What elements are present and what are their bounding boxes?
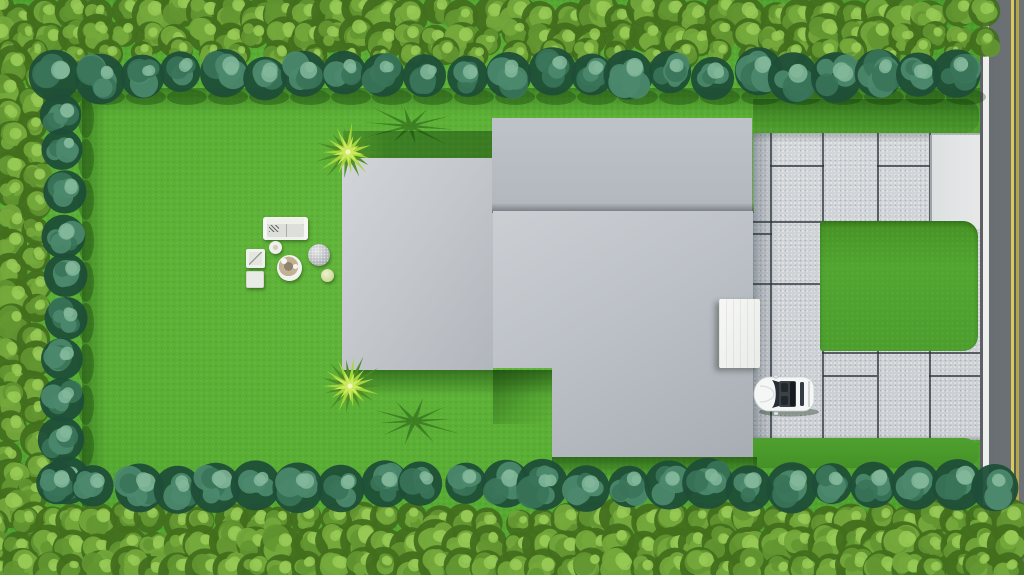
tree-row-shadows (44, 89, 986, 507)
aerial-site-render (0, 0, 1024, 575)
tree-row (29, 47, 1019, 514)
perimeter-hedge-layer (0, 0, 1024, 575)
